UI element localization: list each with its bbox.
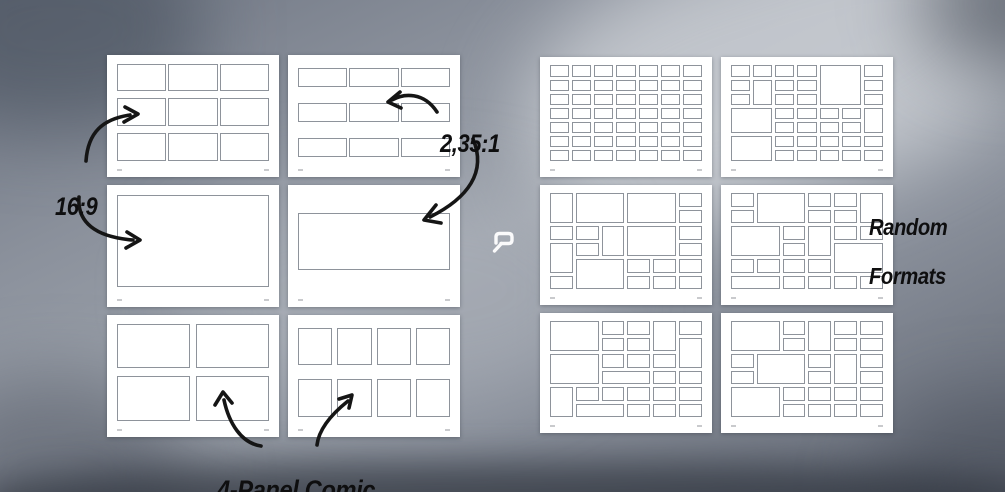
storyboard-panel [753,65,772,76]
storyboard-panel [117,324,190,369]
storyboard-panel [602,354,625,368]
sheet-footer-mark [117,429,122,431]
storyboard-panel [627,354,650,368]
storyboard-panel [576,226,599,240]
storyboard-panel [797,80,816,91]
four-panel-comic-label: 4-Panel Comic [217,444,397,492]
storyboard-panel [653,387,676,401]
storyboard-panel [864,80,883,91]
sheet-footer-mark [264,169,269,171]
storyboard-panel [337,379,371,417]
storyboard-panel [864,150,883,161]
storyboard-panel [196,376,269,421]
storyboard-panel [860,404,883,418]
storyboard-panel [834,226,857,240]
storyboard-panel [661,122,680,133]
storyboard-panel [639,150,658,161]
storyboard-panel [679,243,702,257]
storyboard-panel [576,193,624,223]
sheet-footer-mark [878,425,883,427]
sheet-footer-mark [731,297,736,299]
storyboard-panel [820,108,839,119]
storyboard-panel [298,379,332,417]
storyboard-2-35-grid-sheet [288,55,460,177]
storyboard-panel [168,133,217,161]
storyboard-panel [550,276,573,290]
storyboard-panel [416,379,450,417]
storyboard-panel [627,338,650,352]
storyboard-panel [550,136,569,147]
storyboard-panel [683,65,702,76]
storyboard-panel [808,259,831,273]
storyboard-panel [860,387,883,401]
storyboard-panel [653,276,676,290]
sheet-footer-mark [878,169,883,171]
storyboard-panel [731,387,779,417]
single-frame-16-9-sheet [107,185,279,307]
storyboard-panel [661,65,680,76]
storyboard-panel [679,387,702,401]
storyboard-panel [627,387,650,401]
sheet-footer-mark [117,299,122,301]
storyboard-panel [572,108,591,119]
storyboard-panel [550,226,573,240]
storyboard-panel [639,108,658,119]
storyboard-panel [572,122,591,133]
storyboard-panel [757,259,780,273]
storyboard-panel [834,338,857,352]
storyboard-panel [594,136,613,147]
sheet-footer-mark [550,169,555,171]
storyboard-panel [602,371,650,385]
panel-area [731,65,882,161]
background-dark-patch [920,0,1005,70]
storyboard-panel [753,80,772,105]
storyboard-panel [842,122,861,133]
storyboard-panel [602,321,625,335]
storyboard-panel [834,404,857,418]
storyboard-panel [808,193,831,207]
storyboard-panel [679,226,702,240]
storyboard-panel [797,122,816,133]
aspect-2-35-label: 2,35:1 [440,101,508,159]
storyboard-panel [808,371,831,385]
random-format-3-sheet [721,185,893,305]
storyboard-panel [616,80,635,91]
panel-area [298,194,449,292]
storyboard-panel [298,138,347,157]
storyboard-panel [220,64,269,92]
panel-area [117,324,268,422]
storyboard-panel [731,226,779,256]
storyboard-panel [783,387,806,401]
storyboard-panel [783,321,806,335]
storyboard-panel [808,276,831,290]
storyboard-panel [616,108,635,119]
storyboard-panel [731,321,779,351]
storyboard-panel [653,371,676,385]
storyboard-panel [168,64,217,92]
sheet-footer-mark [445,299,450,301]
storyboard-panel [820,150,839,161]
four-panel-comic-sheet [107,315,279,437]
storyboard-panel [808,387,831,401]
storyboard-panel [731,94,750,105]
storyboard-panel [834,321,857,335]
storyboard-panel [860,371,883,385]
storyboard-panel [808,354,831,368]
storyboard-panel [349,103,398,122]
storyboard-panel [627,404,650,418]
storyboard-panel [683,150,702,161]
storyboard-panel [576,259,624,289]
storyboard-panel [550,387,573,417]
sheet-footer-mark [298,299,303,301]
background-dark-patch [0,462,1005,492]
r-logo-icon [491,230,515,256]
sheet-footer-mark [264,429,269,431]
storyboard-panel [639,65,658,76]
storyboard-panel [731,210,754,224]
storyboard-panel [820,65,861,104]
storyboard-panel [298,328,332,366]
storyboard-panel [594,150,613,161]
storyboard-panel [594,65,613,76]
storyboard-panel [679,276,702,290]
storyboard-panel [683,136,702,147]
storyboard-panel [864,108,883,133]
storyboard-panel [576,243,599,257]
storyboard-panel [860,354,883,368]
storyboard-panel [757,354,805,384]
random-format-4-sheet [540,313,712,433]
storyboard-panel [298,103,347,122]
sheet-footer-mark [550,297,555,299]
storyboard-panel [679,404,702,418]
sheet-footer-mark [731,169,736,171]
storyboard-panel [594,80,613,91]
storyboard-panel [808,226,831,256]
storyboard-panel [576,387,599,401]
sheet-footer-mark [731,425,736,427]
storyboard-panel [731,371,754,385]
sheet-footer-mark [697,297,702,299]
storyboard-panel [550,243,573,273]
storyboard-panel [639,80,658,91]
storyboard-panel [220,133,269,161]
storyboard-panel [298,68,347,87]
storyboard-panel [616,122,635,133]
storyboard-panel [783,226,806,240]
panel-area [731,193,882,289]
storyboard-panel [808,210,831,224]
storyboard-panel [349,138,398,157]
storyboard-panel [860,338,883,352]
storyboard-panel [661,150,680,161]
storyboard-panel [731,65,750,76]
storyboard-panel [731,259,754,273]
storyboard-panel [679,338,702,368]
storyboard-panel [220,98,269,126]
storyboard-panel [731,108,772,133]
storyboard-panel [842,150,861,161]
sheet-footer-mark [445,169,450,171]
storyboard-panel [653,354,676,368]
sheet-footer-mark [117,169,122,171]
storyboard-panel [550,150,569,161]
storyboard-panel [834,276,857,290]
storyboard-panel [168,98,217,126]
storyboard-panel [572,65,591,76]
storyboard-panel [653,321,676,351]
sheet-footer-mark [298,429,303,431]
storyboard-16-9-grid-sheet [107,55,279,177]
storyboard-panel [298,213,449,270]
panel-area [117,64,268,162]
storyboard-panel [117,98,166,126]
random-format-5-sheet [721,313,893,433]
storyboard-panel [797,150,816,161]
dense-grid-7x7-sheet [540,57,712,177]
storyboard-panel [783,404,806,418]
storyboard-panel [616,136,635,147]
storyboard-panel [679,259,702,273]
sheet-footer-mark [697,425,702,427]
storyboard-panel [550,122,569,133]
storyboard-panel [683,122,702,133]
storyboard-panel [864,136,883,147]
storyboard-panel [416,328,450,366]
storyboard-panel [639,122,658,133]
storyboard-panel [683,80,702,91]
storyboard-panel [834,354,857,384]
storyboard-panel [602,387,625,401]
random-formats-label: Random Formats [869,190,958,289]
storyboard-panel [860,321,883,335]
storyboard-panel [808,321,831,351]
random-format-2-sheet [540,185,712,305]
storyboard-panel [377,328,411,366]
background-dark-patch [880,400,1005,492]
storyboard-panel [661,80,680,91]
single-frame-2-35-sheet [288,185,460,307]
storyboard-panel [661,108,680,119]
storyboard-panel [550,80,569,91]
storyboard-panel [775,122,794,133]
storyboard-panel [842,136,861,147]
storyboard-panel [572,80,591,91]
panel-area [117,194,268,292]
storyboard-panel [834,387,857,401]
storyboard-panel [757,193,805,223]
storyboard-panel [797,65,816,76]
storyboard-panel [775,80,794,91]
storyboard-panel [797,94,816,105]
storyboard-panel [117,376,190,421]
storyboard-panel [679,371,702,385]
storyboard-panel [661,94,680,105]
storyboard-panel [820,136,839,147]
storyboard-panel [401,68,450,87]
panel-area [550,321,701,417]
storyboard-panel [653,404,676,418]
storyboard-panel [377,379,411,417]
storyboard-panel [783,243,806,257]
storyboard-panel [627,276,650,290]
storyboard-panel [627,259,650,273]
sheet-footer-mark [445,429,450,431]
storyboard-panel [117,133,166,161]
storyboard-panel [683,94,702,105]
storyboard-panel [550,321,598,351]
aspect-16-9-label: 16:9 [55,164,103,222]
storyboard-panel [775,108,794,119]
storyboard-panel [864,94,883,105]
storyboard-panel [616,65,635,76]
storyboard-panel [572,94,591,105]
storyboard-panel [594,94,613,105]
sheet-footer-mark [264,299,269,301]
storyboard-panel [627,226,675,256]
storyboard-panel [797,136,816,147]
storyboard-panel [550,193,573,223]
storyboard-panel [196,324,269,369]
storyboard-panel [731,276,779,290]
storyboard-panel [117,64,166,92]
storyboard-panel [639,136,658,147]
panel-area [298,324,449,422]
storyboard-panel [349,68,398,87]
promo-image: 16:9 2,35:1 4-Panel Comic Random Formats [0,0,1005,492]
storyboard-panel [616,150,635,161]
storyboard-panel [783,338,806,352]
storyboard-panel [679,321,702,335]
storyboard-panel [679,193,702,207]
eight-panel-comic-sheet [288,315,460,437]
storyboard-panel [572,136,591,147]
storyboard-panel [616,94,635,105]
storyboard-panel [775,94,794,105]
storyboard-panel [775,136,794,147]
sheet-footer-mark [298,169,303,171]
storyboard-panel [842,108,861,119]
storyboard-panel [731,193,754,207]
storyboard-panel [808,404,831,418]
panel-area [298,64,449,162]
storyboard-panel [820,122,839,133]
storyboard-panel [797,108,816,119]
storyboard-panel [653,259,676,273]
storyboard-panel [627,321,650,335]
random-format-1-sheet [721,57,893,177]
storyboard-panel [337,328,371,366]
storyboard-panel [834,210,857,224]
storyboard-panel [550,94,569,105]
storyboard-panel [550,354,598,384]
sheet-footer-mark [878,297,883,299]
aspect-templates-group [107,55,460,437]
storyboard-panel [550,108,569,119]
panel-area [550,193,701,289]
sheet-footer-mark [550,425,555,427]
storyboard-panel [602,338,625,352]
storyboard-panel [679,210,702,224]
storyboard-panel [775,150,794,161]
storyboard-panel [783,276,806,290]
storyboard-panel [576,404,624,418]
storyboard-panel [550,65,569,76]
random-format-templates-group [540,57,893,433]
storyboard-panel [834,193,857,207]
storyboard-panel [683,108,702,119]
storyboard-panel [594,122,613,133]
storyboard-panel [639,94,658,105]
storyboard-panel [731,80,750,91]
storyboard-panel [783,259,806,273]
storyboard-panel [627,193,675,223]
storyboard-panel [864,65,883,76]
storyboard-panel [731,136,772,161]
storyboard-panel [731,354,754,368]
storyboard-panel [602,226,625,256]
panel-area [731,321,882,417]
storyboard-panel [572,150,591,161]
storyboard-panel [117,195,268,287]
storyboard-panel [594,108,613,119]
storyboard-panel [661,136,680,147]
sheet-footer-mark [697,169,702,171]
panel-area [550,65,701,161]
storyboard-panel [775,65,794,76]
